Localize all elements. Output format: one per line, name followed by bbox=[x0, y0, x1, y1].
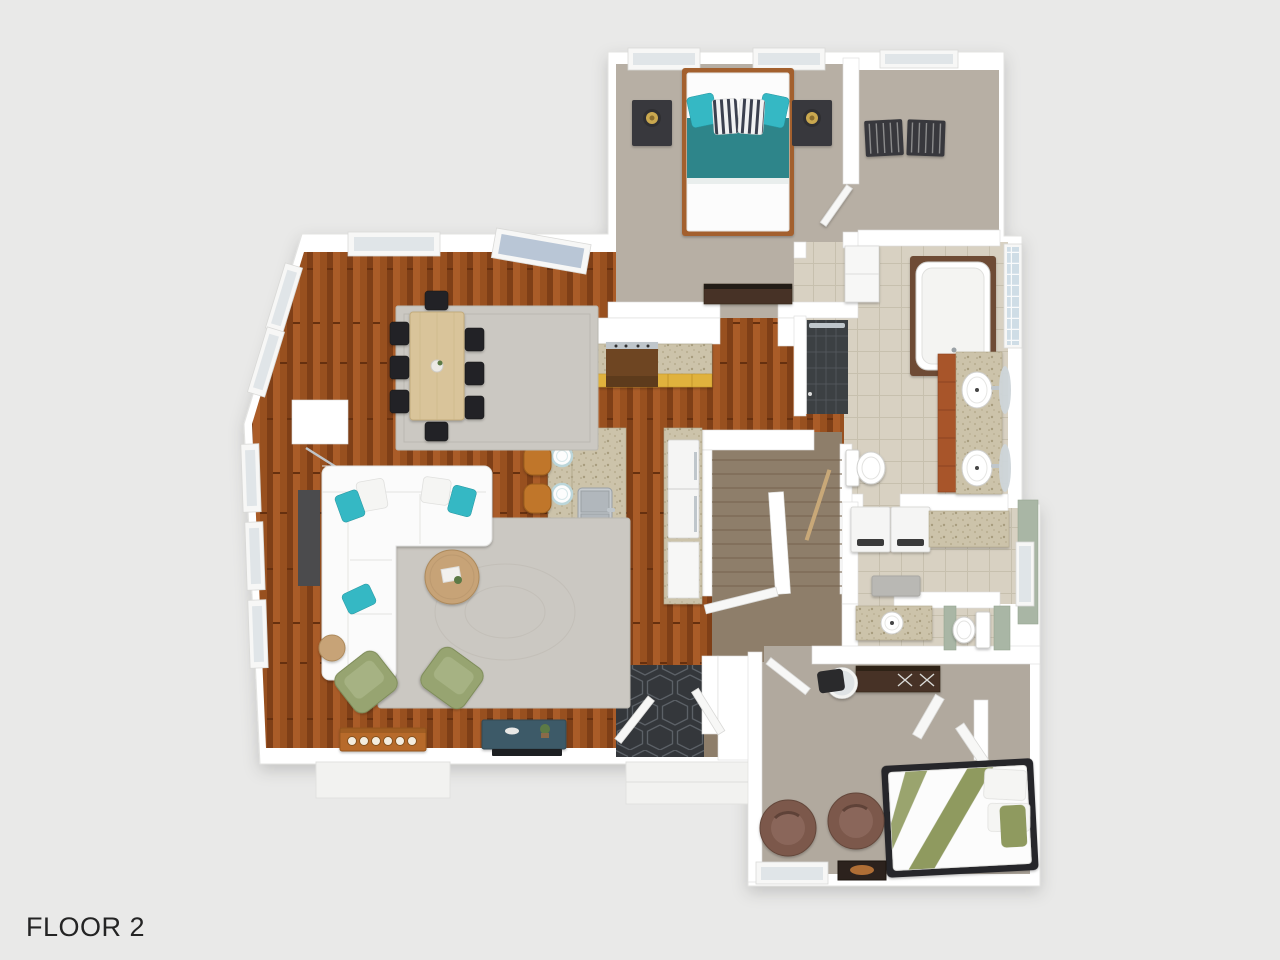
media-console bbox=[482, 720, 566, 749]
striped-pillow bbox=[738, 98, 765, 135]
double-vanity bbox=[938, 352, 1002, 494]
dining-area bbox=[390, 291, 598, 450]
master-doorway bbox=[718, 302, 778, 318]
swivel-chair bbox=[760, 800, 816, 856]
sideboard bbox=[340, 728, 426, 751]
bed2-pillow bbox=[983, 768, 1027, 800]
shower-door-knob bbox=[808, 392, 812, 396]
dining-chair bbox=[390, 322, 409, 345]
sideboard-plate bbox=[384, 737, 393, 746]
toilet bbox=[846, 450, 885, 486]
nightstand-right bbox=[792, 100, 832, 146]
dining-wall-stub bbox=[292, 400, 348, 444]
console-plant bbox=[540, 724, 550, 734]
wall bbox=[843, 58, 859, 184]
dining-chair bbox=[390, 390, 409, 413]
side-table bbox=[319, 635, 345, 661]
dining-table bbox=[410, 312, 464, 420]
dining-chair bbox=[425, 291, 448, 310]
dining-chair bbox=[465, 396, 484, 419]
laundry-counter bbox=[929, 511, 1009, 547]
wall bbox=[858, 230, 1000, 246]
window-master-1 bbox=[628, 48, 700, 70]
luggage-rack bbox=[906, 119, 945, 156]
dryer bbox=[891, 507, 930, 552]
sideboard-plate bbox=[348, 737, 357, 746]
vanity-desk bbox=[856, 666, 940, 692]
stair-top-doorway bbox=[812, 432, 842, 450]
lower-cabinet bbox=[668, 542, 699, 598]
coffee-table bbox=[425, 550, 479, 604]
window-closet bbox=[880, 50, 958, 68]
wall bbox=[608, 302, 720, 318]
nightstand-left bbox=[632, 100, 672, 146]
window-left-3 bbox=[241, 444, 261, 513]
refrigerator-column bbox=[664, 428, 702, 604]
sideboard-plate bbox=[396, 737, 405, 746]
vanity-stool bbox=[817, 668, 846, 693]
shower-bar bbox=[809, 323, 845, 328]
dining-chair bbox=[425, 422, 448, 441]
washer bbox=[851, 507, 890, 552]
wall bbox=[748, 652, 762, 882]
wall bbox=[794, 242, 806, 258]
dining-chair bbox=[390, 356, 409, 379]
bathroom2-green-wall bbox=[994, 606, 1010, 650]
sideboard-plate bbox=[372, 737, 381, 746]
exterior-stoop-entry bbox=[626, 762, 756, 804]
sofa-pillow bbox=[420, 476, 451, 506]
entry-hall-gap bbox=[704, 732, 718, 757]
window-left-5 bbox=[248, 600, 268, 669]
sideboard-plate bbox=[360, 737, 369, 746]
glass-block-window bbox=[1004, 244, 1022, 348]
wall bbox=[794, 316, 806, 416]
laundry-mat bbox=[872, 576, 920, 596]
window-dining-1 bbox=[348, 232, 440, 256]
olive-lumbar-pillow bbox=[999, 805, 1027, 848]
floor-plan-page: FLOOR 2 bbox=[0, 0, 1280, 960]
place-setting bbox=[552, 484, 572, 504]
window-left-4 bbox=[245, 522, 265, 591]
dark-rug bbox=[838, 861, 886, 880]
oval-mirror bbox=[999, 444, 1011, 492]
floor-label: FLOOR 2 bbox=[26, 912, 145, 943]
window-bedroom2 bbox=[756, 862, 828, 884]
linen-cabinet bbox=[845, 246, 879, 302]
dining-chair bbox=[465, 362, 484, 385]
tv bbox=[492, 749, 562, 756]
coffee-table-plant bbox=[454, 576, 462, 584]
wall bbox=[778, 302, 858, 318]
bed2 bbox=[881, 758, 1039, 878]
range bbox=[606, 342, 658, 387]
wall bbox=[698, 430, 814, 450]
tv-dresser bbox=[704, 284, 792, 304]
swivel-chair bbox=[828, 793, 884, 849]
window-master-2 bbox=[753, 48, 825, 70]
bar-stool bbox=[524, 484, 551, 513]
floor-plan-render bbox=[0, 0, 1280, 960]
duvet-fold bbox=[687, 178, 789, 184]
wall bbox=[718, 656, 752, 760]
console-decor bbox=[505, 728, 519, 735]
striped-pillow bbox=[712, 98, 739, 135]
bathroom2-sink bbox=[881, 612, 903, 634]
luggage-rack bbox=[864, 119, 904, 157]
sofa-console bbox=[298, 490, 320, 586]
dining-chair bbox=[465, 328, 484, 351]
oval-mirror bbox=[999, 366, 1011, 414]
walk-in-shower bbox=[806, 320, 848, 414]
window-laundry bbox=[1016, 542, 1034, 606]
sideboard-plate bbox=[408, 737, 417, 746]
exterior-stoop-left bbox=[316, 762, 450, 798]
